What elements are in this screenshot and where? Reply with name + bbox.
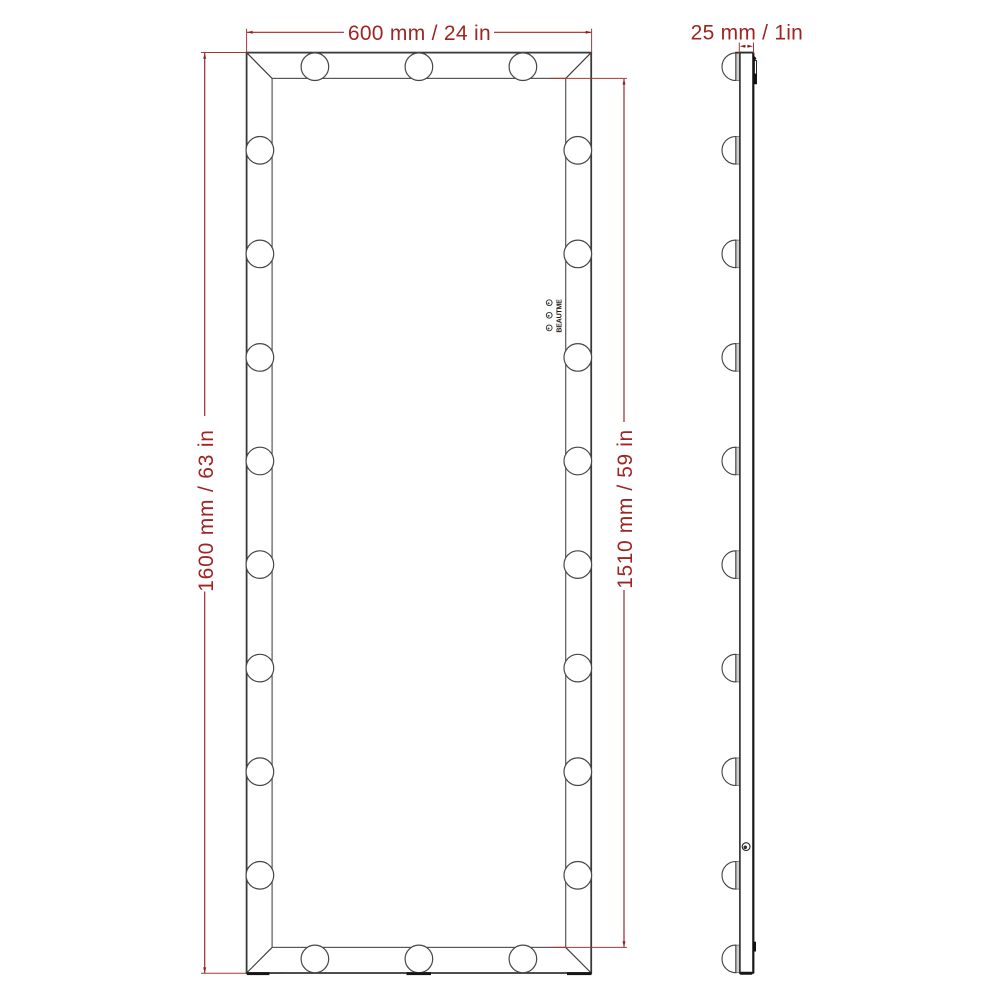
svg-text:25 mm / 1in: 25 mm / 1in: [691, 22, 803, 45]
svg-text:1600 mm / 63 in: 1600 mm / 63 in: [195, 429, 218, 592]
svg-text:1510 mm / 59 in: 1510 mm / 59 in: [614, 429, 637, 589]
svg-text:600 mm / 24 in: 600 mm / 24 in: [348, 22, 491, 45]
svg-text:BEAUTME: BEAUTME: [557, 299, 564, 333]
